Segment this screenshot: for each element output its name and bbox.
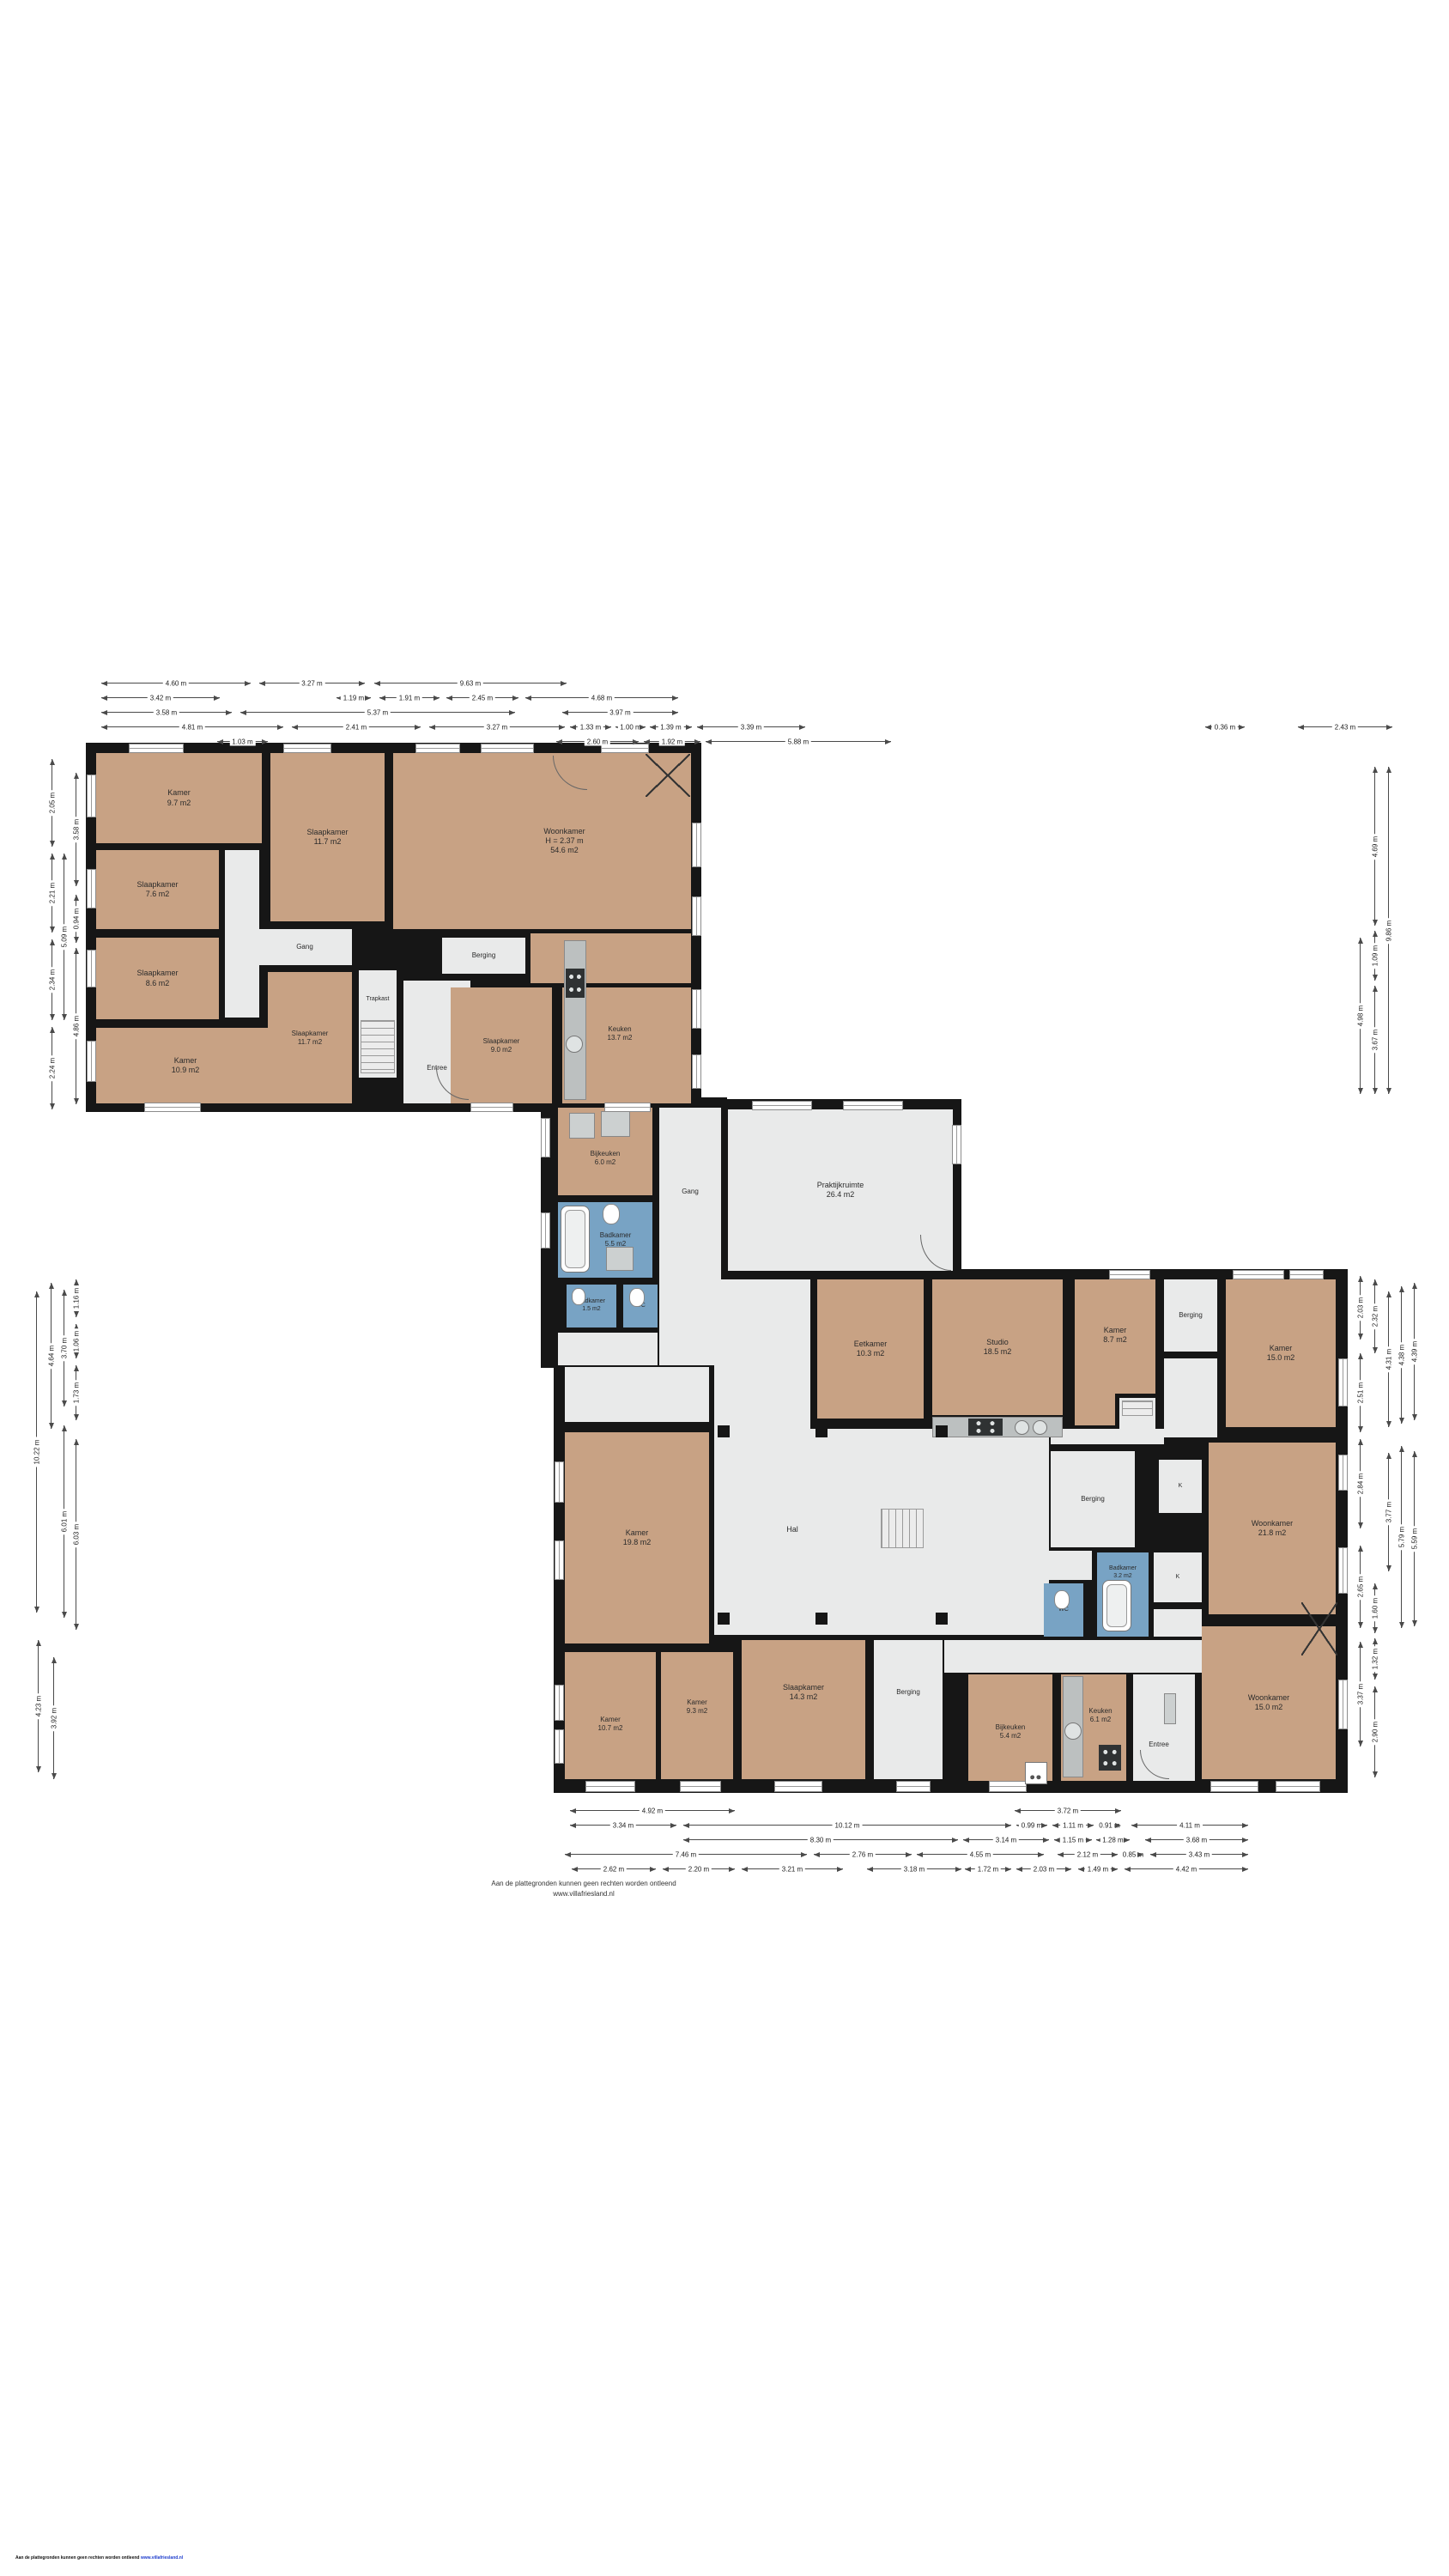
fixture-pillar-icon [815, 1613, 828, 1625]
room-label: Trapkast [367, 996, 390, 1004]
dimension-line: 2.84 m [1360, 1439, 1361, 1528]
dimension-label: 4.60 m [163, 680, 189, 688]
dimension-label: 4.69 m [1372, 833, 1379, 859]
dimension-label: 9.63 m [458, 680, 483, 688]
dimension-line: 2.62 m [572, 1868, 656, 1869]
dimension-line: 3.42 m [101, 697, 220, 698]
window [1338, 1680, 1348, 1729]
dimension-line: 1.73 m [76, 1365, 76, 1420]
dimension-label: 3.14 m [993, 1837, 1019, 1844]
dimension-line: 1.06 m [76, 1324, 76, 1358]
dimension-label: 1.92 m [659, 738, 685, 746]
dimension-label: 2.21 m [49, 880, 57, 906]
dimension-line: 1.16 m [76, 1279, 76, 1317]
fixture-rect2-icon [1164, 1693, 1176, 1724]
dimension-label: 8.30 m [808, 1837, 834, 1844]
dimension-label: 1.11 m [1060, 1822, 1086, 1830]
dimension-label: 4.86 m [73, 1013, 81, 1039]
window [989, 1781, 1027, 1792]
dimension-line: 0.99 m [1016, 1825, 1047, 1826]
room-label: Woonkamer21.8 m2 [1252, 1519, 1293, 1539]
fixture-rect2-icon [569, 1113, 595, 1139]
dimension-label: 1.60 m [1372, 1595, 1379, 1621]
fixture-circle-icon [566, 1036, 583, 1053]
disclaimer-tiny: Aan de plattegronden kunnen geen rechten… [15, 2555, 183, 2561]
window [87, 775, 96, 817]
room-label: Keuken6.1 m2 [1088, 1707, 1112, 1724]
dimension-line: 3.92 m [53, 1657, 54, 1779]
dimension-line: 4.60 m [101, 683, 251, 683]
room-hal-c [565, 1367, 709, 1422]
fixture-pillar-icon [718, 1613, 730, 1625]
dimension-label: 2.65 m [1357, 1574, 1365, 1600]
dimension-line: 1.28 m [1096, 1839, 1130, 1840]
dimension-label: 4.68 m [589, 695, 615, 702]
dimension-line: 3.72 m [1015, 1810, 1121, 1811]
room-label: Berging [472, 951, 496, 960]
dimension-line: 1.00 m [615, 726, 646, 727]
room-label: Slaapkamer11.7 m2 [292, 1030, 329, 1047]
room-label: Bijkeuken6.0 m2 [591, 1150, 621, 1167]
room-woonkamer-218: Woonkamer21.8 m2 [1209, 1443, 1336, 1614]
room-corr-ne [1164, 1358, 1217, 1437]
dimension-line: 2.21 m [52, 854, 52, 933]
window [541, 1118, 550, 1157]
room-vestibule [558, 1333, 658, 1365]
dimension-label: 2.32 m [1372, 1303, 1379, 1329]
dimension-label: 4.39 m [1411, 1339, 1419, 1364]
room-berging-bottom: Berging [874, 1640, 943, 1779]
window [896, 1781, 931, 1792]
disclaimer: Aan de plattegronden kunnen geen rechten… [491, 1879, 676, 1899]
dimension-line: 2.24 m [52, 1027, 52, 1109]
fixture-diagx-icon [646, 754, 690, 797]
bathtub-inner [565, 1210, 585, 1268]
dimension-label: 3.67 m [1372, 1027, 1379, 1053]
room-gang-bottom: Gang [659, 1108, 721, 1276]
dimension-line: 2.90 m [1374, 1686, 1375, 1777]
dimension-line: 4.92 m [570, 1810, 735, 1811]
dimension-line: 0.91 m [1098, 1825, 1121, 1826]
dimension-label: 1.49 m [1085, 1866, 1111, 1874]
dimension-label: 6.01 m [61, 1509, 69, 1534]
dimension-line: 2.03 m [1360, 1276, 1361, 1340]
window [585, 1781, 635, 1792]
fixture-circle-icon [1033, 1420, 1047, 1435]
fixture-tub-icon [561, 1206, 590, 1273]
dimension-line: 0.85 m [1123, 1854, 1143, 1855]
room-corr-above-wc [1044, 1551, 1092, 1580]
dimension-line: 3.58 m [76, 773, 76, 886]
window [555, 1729, 564, 1764]
fixture-pillar-icon [718, 1425, 730, 1437]
room-kast-2: K [1154, 1552, 1202, 1602]
window [680, 1781, 721, 1792]
window [1289, 1270, 1324, 1279]
room-berging-ne: Berging [1164, 1279, 1217, 1352]
room-berging-mid: Berging [1051, 1451, 1135, 1547]
fixture-stairs-v-icon [361, 1020, 395, 1073]
dimension-line: 3.37 m [1360, 1642, 1361, 1747]
dimension-label: 5.09 m [61, 924, 69, 950]
room-label: Berging [1179, 1311, 1203, 1320]
disclaimer-tiny-link: www.villafriesland.nl [141, 2555, 183, 2561]
dimension-label: 1.06 m [73, 1328, 81, 1354]
dimension-line: 4.39 m [1414, 1283, 1415, 1420]
dimension-label: 4.64 m [48, 1343, 56, 1369]
dimension-line: 1.33 m [570, 726, 611, 727]
window [843, 1101, 903, 1110]
dimension-label: 2.76 m [850, 1851, 876, 1859]
room-label: Slaapkamer14.3 m2 [783, 1683, 824, 1703]
dimension-label: 3.21 m [779, 1866, 805, 1874]
dimension-label: 3.39 m [738, 724, 764, 732]
dimension-line: 4.11 m [1131, 1825, 1248, 1826]
room-label: Bijkeuken5.4 m2 [996, 1723, 1026, 1741]
window [692, 1054, 701, 1089]
dimension-label: 5.37 m [365, 709, 391, 717]
dimension-line: 4.64 m [51, 1283, 52, 1429]
dimension-line: 3.68 m [1145, 1839, 1248, 1840]
dimension-label: 2.34 m [49, 967, 57, 993]
dimension-line: 4.68 m [525, 697, 678, 698]
dimension-label: 4.92 m [640, 1807, 665, 1815]
dimension-label: 3.18 m [901, 1866, 927, 1874]
fixture-diagx-icon [1301, 1602, 1337, 1656]
window [1109, 1270, 1150, 1279]
dimension-line: 10.12 m [683, 1825, 1011, 1826]
dimension-label: 2.05 m [49, 790, 57, 816]
fixture-pillar-icon [815, 1425, 828, 1437]
dimension-label: 2.84 m [1357, 1471, 1365, 1497]
dimension-label: 3.42 m [148, 695, 173, 702]
room-berging-top: Berging [442, 938, 525, 974]
dimension-line: 2.03 m [1016, 1868, 1071, 1869]
dimension-line: 4.55 m [917, 1854, 1044, 1855]
dimension-line: 1.15 m [1054, 1839, 1092, 1840]
room-slaapkamer-117b: Slaapkamer11.7 m2 [268, 972, 352, 1103]
room-label: Gang [296, 943, 313, 951]
room-label: Kamer10.9 m2 [172, 1056, 200, 1076]
window [555, 1540, 564, 1580]
dimension-line: 1.39 m [650, 726, 692, 727]
dimension-line: 3.39 m [697, 726, 805, 727]
dimension-line: 2.41 m [292, 726, 421, 727]
fixture-circle-icon [1015, 1420, 1029, 1435]
room-woonkamer-ext [530, 933, 691, 983]
dimension-line: 1.11 m [1052, 1825, 1094, 1826]
window [1233, 1270, 1284, 1279]
window [555, 1461, 564, 1503]
dimension-label: 3.58 m [154, 709, 179, 717]
dimension-line: 5.59 m [1414, 1451, 1415, 1626]
dimension-line: 3.77 m [1388, 1453, 1389, 1571]
dimension-line: 5.79 m [1401, 1446, 1402, 1628]
dimension-line: 2.60 m [556, 741, 639, 742]
dimension-label: 3.34 m [610, 1822, 636, 1830]
room-gang-bottom2 [659, 1276, 721, 1365]
dimension-label: 0.99 m [1019, 1822, 1045, 1830]
dimension-line: 8.30 m [683, 1839, 958, 1840]
dimension-label: 1.33 m [578, 724, 603, 732]
dimension-line: 2.20 m [663, 1868, 735, 1869]
dimension-label: 2.24 m [49, 1055, 57, 1081]
dimension-line: 2.43 m [1298, 726, 1392, 727]
dimension-label: 3.68 m [1184, 1837, 1210, 1844]
room-label: K [1176, 1574, 1180, 1582]
dimension-line: 1.19 m [336, 697, 371, 698]
dimension-label: 6.03 m [73, 1522, 81, 1547]
room-label: Badkamer3.2 m2 [1109, 1565, 1137, 1581]
room-slaapkamer-86: Slaapkamer8.6 m2 [96, 938, 219, 1019]
dimension-line: 3.14 m [963, 1839, 1049, 1840]
dimension-label: 2.20 m [686, 1866, 712, 1874]
dimension-line: 5.37 m [240, 712, 515, 713]
room-gang-top: Gang [258, 929, 352, 965]
dimension-line: 9.86 m [1388, 767, 1389, 1094]
dimension-label: 2.03 m [1031, 1866, 1057, 1874]
dimension-line: 4.23 m [38, 1640, 39, 1772]
dimension-line: 2.12 m [1058, 1854, 1118, 1855]
window [87, 950, 96, 987]
dimension-label: 1.03 m [229, 738, 255, 746]
window [541, 1212, 550, 1249]
dimension-line: 3.21 m [742, 1868, 843, 1869]
dimension-line: 3.27 m [429, 726, 565, 727]
room-label: K [1179, 1483, 1183, 1491]
fixture-tub-icon [1102, 1580, 1131, 1631]
room-slaapkamer-76: Slaapkamer7.6 m2 [96, 850, 219, 929]
dimension-label: 4.31 m [1385, 1346, 1393, 1372]
dimension-label: 1.09 m [1372, 943, 1379, 969]
dimension-label: 3.27 m [484, 724, 510, 732]
fixture-rect2-icon [606, 1247, 634, 1271]
room-label: Eetkamer10.3 m2 [854, 1340, 888, 1359]
dimension-line: 4.86 m [76, 948, 76, 1104]
room-kamer-97: Kamer9.7 m2 [96, 753, 262, 843]
dimension-label: 1.73 m [73, 1380, 81, 1406]
dimension-line: 4.38 m [1401, 1286, 1402, 1424]
dimension-line: 3.67 m [1374, 986, 1375, 1094]
dimension-line: 2.32 m [1374, 1279, 1375, 1353]
room-kamer-107: Kamer10.7 m2 [565, 1652, 656, 1779]
fixture-stove-icon [968, 1419, 1003, 1436]
window [87, 869, 96, 908]
dimension-label: 2.12 m [1075, 1851, 1100, 1859]
dimension-line: 4.98 m [1360, 938, 1361, 1094]
room-corr-bottom [944, 1640, 1202, 1673]
window [692, 989, 701, 1029]
dimension-label: 4.42 m [1173, 1866, 1199, 1874]
fixture-pillar-icon [936, 1613, 948, 1625]
dimension-line: 4.69 m [1374, 767, 1375, 926]
window [1338, 1358, 1348, 1406]
dimension-line: 3.34 m [570, 1825, 676, 1826]
dimension-line: 2.51 m [1360, 1353, 1361, 1432]
dimension-line: 3.27 m [259, 683, 365, 683]
window [952, 1125, 961, 1164]
room-kamer-93: Kamer9.3 m2 [661, 1652, 733, 1779]
dimension-line: 1.91 m [379, 697, 440, 698]
dimension-label: 1.28 m [1100, 1837, 1125, 1844]
window [1338, 1547, 1348, 1594]
fixture-wcircle-icon [572, 1288, 585, 1305]
fixture-rect2-icon [601, 1111, 630, 1137]
dimension-line: 3.97 m [562, 712, 678, 713]
window [129, 744, 184, 753]
dimension-label: 1.72 m [975, 1866, 1001, 1874]
fixture-wcircle-icon [629, 1288, 645, 1307]
dimension-label: 4.11 m [1177, 1822, 1203, 1830]
room-label: WoonkamerH = 2.37 m54.6 m2 [543, 827, 585, 856]
dimension-label: 0.36 m [1212, 724, 1238, 732]
dimension-line: 3.58 m [101, 712, 232, 713]
dimension-label: 1.00 m [617, 724, 643, 732]
dimension-label: 3.43 m [1186, 1851, 1212, 1859]
room-label: Badkamer5.5 m2 [600, 1231, 631, 1249]
room-label: Slaapkamer9.0 m2 [483, 1037, 520, 1054]
dimension-label: 3.27 m [299, 680, 324, 688]
dimension-line: 1.03 m [217, 741, 268, 742]
dimension-line: 7.46 m [565, 1854, 807, 1855]
room-label: Studio18.5 m2 [984, 1338, 1012, 1358]
room-hal-b [810, 1429, 1049, 1635]
room-eetkamer: Eetkamer10.3 m2 [817, 1279, 924, 1419]
window [555, 1685, 564, 1721]
dimension-label: 1.32 m [1372, 1646, 1379, 1672]
dimension-label: 1.19 m [341, 695, 367, 702]
fixture-stairs-h-icon [881, 1509, 924, 1548]
room-studio: Studio18.5 m2 [932, 1279, 1063, 1415]
dimension-label: 1.39 m [658, 724, 683, 732]
dimension-label: 2.45 m [470, 695, 495, 702]
window [283, 744, 331, 753]
dimension-label: 3.70 m [61, 1335, 69, 1361]
dimension-label: 3.72 m [1055, 1807, 1081, 1815]
dimension-line: 1.32 m [1374, 1638, 1375, 1680]
dimension-label: 3.58 m [73, 817, 81, 842]
dimension-label: 2.90 m [1372, 1719, 1379, 1745]
room-label: Berging [1081, 1495, 1105, 1504]
fixture-wcircle-icon [603, 1204, 620, 1224]
room-kamer-150: Kamer15.0 m2 [1226, 1279, 1336, 1427]
dimension-label: 5.59 m [1411, 1526, 1419, 1552]
dimension-line: 0.94 m [76, 895, 76, 943]
dimension-label: 2.03 m [1357, 1295, 1365, 1321]
dimension-label: 4.55 m [967, 1851, 993, 1859]
room-label: Entree [1149, 1741, 1169, 1749]
room-hal-a: Hal [714, 1279, 810, 1635]
dimension-label: 7.46 m [673, 1851, 699, 1859]
fixture-counter-icon [564, 940, 586, 1100]
room-kamer-109: Kamer10.9 m2 [96, 1028, 275, 1103]
window [1338, 1455, 1348, 1491]
dimension-label: 3.37 m [1357, 1681, 1365, 1707]
room-praktijkruimte: Praktijkruimte26.4 m2 [728, 1109, 953, 1271]
dimension-line: 6.01 m [64, 1425, 64, 1618]
room-label: Kamer10.7 m2 [598, 1716, 623, 1733]
dimension-label: 2.62 m [601, 1866, 627, 1874]
room-label: Kamer19.8 m2 [623, 1528, 652, 1548]
dimension-label: 3.92 m [51, 1705, 58, 1731]
window [87, 1041, 96, 1082]
room-label: Kamer8.7 m2 [1103, 1326, 1127, 1346]
dimension-label: 0.91 m [1096, 1822, 1122, 1830]
dimension-label: 0.85 m [1120, 1851, 1146, 1859]
fixture-circle-icon [1064, 1722, 1082, 1740]
floorplan-canvas: Aan de plattegronden kunnen geen rechten… [0, 0, 1449, 2576]
window [692, 896, 701, 936]
dimension-line: 10.22 m [36, 1291, 37, 1613]
dimension-label: 2.51 m [1357, 1380, 1365, 1406]
dimension-label: 2.60 m [585, 738, 610, 746]
dimension-label: 4.81 m [179, 724, 205, 732]
window [774, 1781, 822, 1792]
disclaimer-url: www.villafriesland.nl [491, 1889, 676, 1899]
bathtub-inner [1106, 1584, 1127, 1627]
dimension-line: 1.49 m [1078, 1868, 1118, 1869]
fixture-stairs-v-icon [1122, 1400, 1153, 1416]
room-slaapkamer-143: Slaapkamer14.3 m2 [742, 1640, 865, 1779]
dimension-label: 9.86 m [1385, 917, 1393, 943]
dimension-label: 1.15 m [1060, 1837, 1086, 1844]
dimension-line: 1.60 m [1374, 1583, 1375, 1633]
dimension-line: 1.09 m [1374, 931, 1375, 981]
window [481, 744, 534, 753]
window [144, 1103, 201, 1112]
fixture-washer-icon [1025, 1762, 1047, 1784]
window [470, 1103, 513, 1112]
dimension-line: 4.42 m [1125, 1868, 1248, 1869]
room-kast-1: K [1159, 1460, 1202, 1513]
dimension-label: 5.79 m [1398, 1524, 1406, 1550]
fixture-pillar-icon [936, 1425, 948, 1437]
dimension-line: 2.05 m [52, 759, 52, 847]
window [1210, 1781, 1258, 1792]
room-label: Kamer9.3 m2 [687, 1698, 707, 1716]
room-label: Hal [786, 1525, 798, 1534]
dimension-line: 2.65 m [1360, 1546, 1361, 1628]
room-corr-mid [1051, 1429, 1164, 1444]
dimension-line: 4.31 m [1388, 1291, 1389, 1427]
dimension-label: 2.41 m [343, 724, 369, 732]
room-label: Woonkamer15.0 m2 [1248, 1693, 1289, 1713]
disclaimer-line1: Aan de plattegronden kunnen geen rechten… [491, 1879, 676, 1889]
room-label: Slaapkamer8.6 m2 [136, 969, 178, 988]
room-label: Slaapkamer7.6 m2 [136, 880, 178, 900]
dimension-line: 2.34 m [52, 939, 52, 1020]
fixture-stove-icon [1099, 1745, 1121, 1771]
room-kamer-198: Kamer19.8 m2 [565, 1432, 709, 1643]
room-label: Berging [896, 1688, 920, 1697]
fixture-wcircle-icon [1054, 1590, 1070, 1609]
room-slaapkamer-117a: Slaapkamer11.7 m2 [270, 753, 385, 921]
window [692, 823, 701, 867]
dimension-label: 4.98 m [1357, 1003, 1365, 1029]
window [1276, 1781, 1320, 1792]
dimension-line: 1.92 m [644, 741, 700, 742]
dimension-label: 10.12 m [833, 1822, 863, 1830]
room-label: Praktijkruimte26.4 m2 [817, 1181, 864, 1200]
fixture-stove-icon [566, 969, 585, 998]
room-label: Kamer15.0 m2 [1267, 1344, 1295, 1364]
dimension-line: 3.18 m [867, 1868, 961, 1869]
dimension-label: 2.43 m [1332, 724, 1358, 732]
dimension-line: 2.45 m [446, 697, 518, 698]
dimension-line: 9.63 m [374, 683, 567, 683]
dimension-label: 4.23 m [35, 1693, 43, 1719]
dimension-label: 5.88 m [785, 738, 811, 746]
